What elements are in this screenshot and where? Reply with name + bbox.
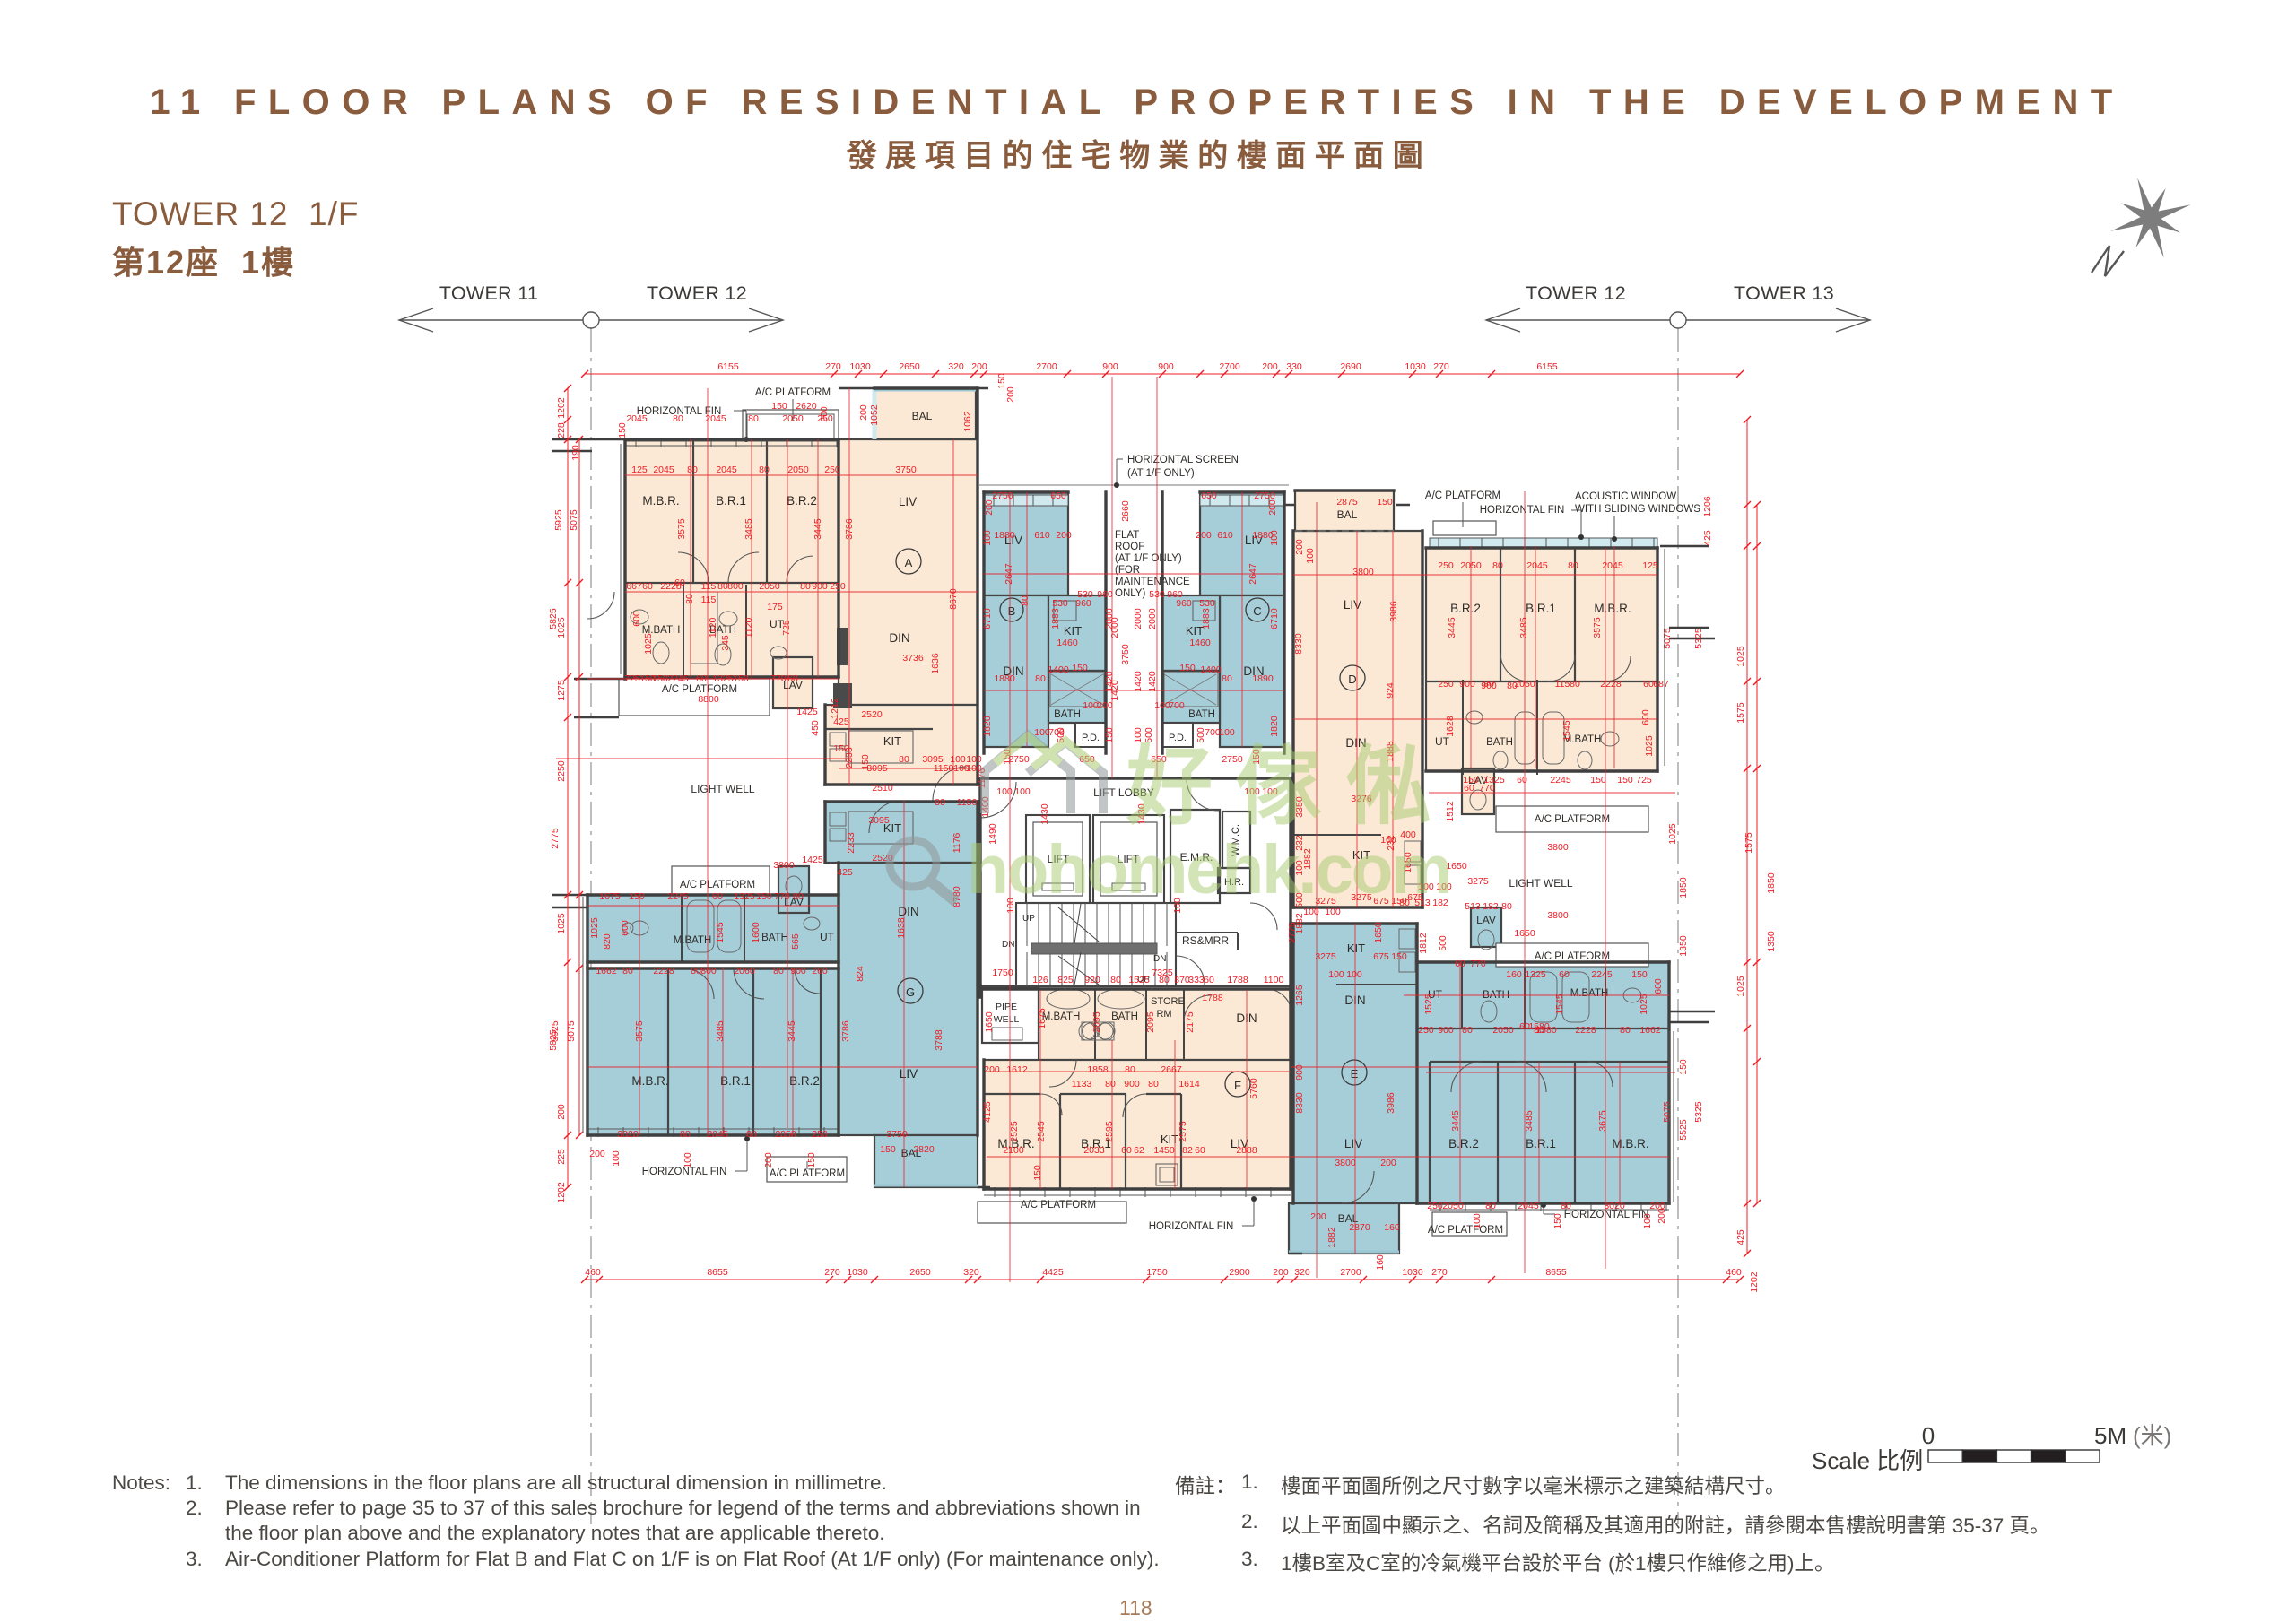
svg-text:1030: 1030 (1402, 1267, 1423, 1278)
svg-text:250: 250 (812, 1129, 828, 1140)
svg-text:60: 60 (1464, 783, 1474, 794)
svg-text:2095: 2095 (1145, 1011, 1156, 1033)
svg-text:333: 333 (1188, 975, 1205, 985)
svg-text:2775: 2775 (550, 828, 561, 849)
svg-text:270: 270 (1433, 361, 1449, 372)
svg-text:80: 80 (1485, 1201, 1496, 1211)
svg-text:1650: 1650 (984, 1011, 995, 1033)
svg-text:3786: 3786 (840, 1020, 851, 1042)
svg-text:2700: 2700 (1036, 361, 1057, 372)
svg-text:A/C PLATFORM: A/C PLATFORM (680, 880, 755, 890)
svg-text:(米): (米) (2133, 1422, 2171, 1449)
svg-text:KIT: KIT (1347, 942, 1365, 955)
svg-text:UP: UP (1022, 914, 1035, 924)
svg-text:150: 150 (1179, 663, 1196, 673)
svg-text:330: 330 (1286, 361, 1302, 372)
svg-text:2250: 2250 (556, 760, 567, 782)
svg-text:3095: 3095 (922, 754, 944, 765)
svg-text:80: 80 (793, 891, 804, 902)
svg-text:900: 900 (1438, 1025, 1454, 1036)
svg-text:1450: 1450 (1153, 1145, 1175, 1156)
svg-text:610: 610 (1217, 530, 1233, 541)
svg-text:725: 725 (624, 673, 640, 684)
svg-text:3485: 3485 (744, 518, 754, 540)
svg-text:60: 60 (696, 673, 707, 684)
svg-text:2750: 2750 (1254, 490, 1275, 501)
svg-text:2620: 2620 (796, 401, 817, 412)
svg-text:3786: 3786 (844, 518, 855, 540)
svg-text:650: 650 (1201, 490, 1217, 501)
svg-text:900: 900 (1102, 361, 1118, 372)
svg-text:150: 150 (1631, 969, 1648, 980)
svg-text:100: 100 (966, 754, 982, 765)
svg-text:(AT 1/F ONLY): (AT 1/F ONLY) (1127, 468, 1195, 479)
svg-text:2245: 2245 (667, 891, 689, 902)
svg-text:MAINTENANCE: MAINTENANCE (1115, 577, 1190, 587)
svg-text:A/C PLATFORM: A/C PLATFORM (1425, 490, 1500, 501)
svg-text:2045: 2045 (1602, 560, 1623, 571)
svg-text:ROOF: ROOF (1115, 542, 1144, 552)
svg-text:250: 250 (824, 464, 840, 475)
svg-text:M.BATH: M.BATH (1042, 1011, 1081, 1022)
svg-text:150: 150 (1377, 497, 1393, 508)
svg-text:M.BATH: M.BATH (674, 935, 712, 946)
svg-text:3788: 3788 (934, 1029, 944, 1051)
svg-text:1580: 1580 (1528, 1021, 1550, 1032)
svg-text:A/C PLATFORM: A/C PLATFORM (1021, 1200, 1096, 1211)
svg-text:KIT: KIT (1064, 624, 1082, 638)
svg-text:345: 345 (720, 635, 731, 651)
svg-text:667: 667 (626, 581, 642, 592)
svg-text:150: 150 (733, 673, 749, 684)
svg-text:80: 80 (1035, 673, 1046, 684)
svg-text:2667: 2667 (1161, 1064, 1182, 1075)
svg-text:LIV: LIV (899, 495, 917, 508)
svg-text:3575: 3575 (1592, 617, 1603, 638)
svg-text:2050: 2050 (1514, 679, 1535, 690)
svg-text:1675: 1675 (1037, 1008, 1048, 1029)
svg-text:1880: 1880 (994, 530, 1015, 541)
svg-text:2545: 2545 (1036, 1121, 1047, 1142)
svg-text:1275: 1275 (556, 680, 567, 701)
svg-text:2045: 2045 (1518, 1201, 1539, 1211)
svg-text:100: 100 (950, 754, 966, 765)
svg-text:60: 60 (1195, 1145, 1205, 1156)
svg-text:2100: 2100 (1003, 1145, 1024, 1156)
svg-text:250: 250 (830, 581, 846, 592)
svg-text:5075: 5075 (1662, 628, 1673, 649)
svg-text:D: D (1348, 673, 1356, 686)
svg-text:80: 80 (684, 594, 695, 604)
svg-text:80: 80 (622, 966, 633, 976)
svg-text:5825: 5825 (548, 608, 559, 629)
svg-text:LAV: LAV (1476, 914, 1496, 926)
svg-text:ACOUSTIC WINDOW: ACOUSTIC WINDOW (1575, 491, 1676, 502)
svg-text:770: 770 (774, 891, 790, 902)
svg-text:2510: 2510 (872, 783, 893, 794)
svg-text:3800: 3800 (1335, 1158, 1356, 1168)
svg-text:1350: 1350 (1678, 935, 1689, 957)
svg-text:E: E (1351, 1067, 1359, 1081)
svg-text:1202: 1202 (1749, 1271, 1760, 1293)
svg-text:260: 260 (812, 966, 828, 976)
svg-text:1120: 1120 (708, 618, 718, 638)
svg-text:425: 425 (837, 867, 853, 878)
svg-text:3020: 3020 (617, 1129, 639, 1140)
svg-text:2820: 2820 (913, 1144, 935, 1155)
svg-text:A/C PLATFORM: A/C PLATFORM (770, 1168, 845, 1179)
svg-text:825: 825 (1057, 975, 1074, 985)
svg-text:2050: 2050 (759, 581, 780, 592)
svg-text:8670: 8670 (948, 588, 959, 610)
svg-text:8655: 8655 (1545, 1267, 1567, 1278)
svg-text:2045: 2045 (626, 413, 648, 424)
svg-text:200: 200 (971, 361, 987, 372)
svg-text:2228: 2228 (1575, 1025, 1596, 1036)
svg-text:900: 900 (1124, 1079, 1140, 1089)
svg-text:460: 460 (1726, 1267, 1742, 1278)
svg-text:82: 82 (1182, 1145, 1193, 1156)
svg-text:824: 824 (855, 966, 865, 982)
svg-text:100: 100 (1642, 1213, 1653, 1229)
svg-text:2245: 2245 (1591, 969, 1613, 980)
svg-text:5075: 5075 (1662, 1101, 1673, 1123)
svg-text:600: 600 (1640, 709, 1651, 725)
svg-text:150: 150 (806, 1152, 817, 1168)
svg-text:M.B.R.: M.B.R. (631, 1074, 668, 1088)
svg-text:80: 80 (717, 581, 728, 592)
svg-text:1612: 1612 (1006, 1064, 1028, 1075)
svg-text:M.B.R.: M.B.R. (642, 494, 679, 508)
svg-text:160: 160 (1506, 969, 1522, 980)
svg-text:1545: 1545 (1554, 994, 1565, 1015)
svg-text:60: 60 (1517, 775, 1527, 785)
svg-text:270: 270 (825, 361, 841, 372)
svg-text:2060: 2060 (734, 966, 755, 976)
svg-text:1788: 1788 (1227, 975, 1248, 985)
svg-text:1400: 1400 (1048, 664, 1069, 675)
svg-text:250: 250 (1438, 679, 1454, 690)
svg-text:80: 80 (1159, 975, 1170, 985)
svg-text:900: 900 (1158, 361, 1174, 372)
svg-text:2000: 2000 (1109, 617, 1120, 638)
svg-text:1638: 1638 (896, 917, 907, 939)
svg-text:530: 530 (1052, 598, 1068, 609)
svg-text:270: 270 (824, 1267, 840, 1278)
svg-text:150: 150 (1072, 663, 1088, 673)
svg-text:DN: DN (1153, 954, 1166, 964)
svg-text:2750: 2750 (992, 490, 1013, 501)
svg-text:80: 80 (1125, 1064, 1135, 1075)
svg-text:62: 62 (1134, 1145, 1144, 1156)
svg-text:8800: 8800 (698, 694, 719, 705)
svg-text:3800: 3800 (1352, 567, 1374, 577)
svg-text:200: 200 (589, 1149, 605, 1159)
svg-text:60: 60 (1455, 959, 1465, 969)
svg-text:425: 425 (833, 716, 849, 727)
svg-text:200: 200 (984, 1064, 1000, 1075)
svg-text:2690: 2690 (1340, 361, 1361, 372)
svg-text:LIV: LIV (1344, 598, 1361, 612)
svg-text:RM: RM (1156, 1009, 1171, 1020)
svg-text:80: 80 (899, 754, 909, 765)
svg-text:3800: 3800 (1547, 910, 1569, 921)
svg-text:5325: 5325 (1693, 1101, 1704, 1123)
svg-text:1025: 1025 (1735, 976, 1746, 997)
svg-text:BAL: BAL (1337, 508, 1358, 521)
svg-text:200: 200 (1005, 386, 1016, 403)
svg-text:60: 60 (642, 581, 653, 592)
svg-text:125: 125 (631, 464, 648, 475)
svg-text:100: 100 (1269, 530, 1280, 546)
svg-text:B.R.2: B.R.2 (1448, 1137, 1479, 1150)
svg-text:6155: 6155 (717, 361, 739, 372)
svg-text:1662: 1662 (596, 966, 617, 976)
svg-text:1206: 1206 (1702, 496, 1713, 517)
svg-text:4425: 4425 (1042, 1267, 1064, 1278)
svg-text:A/C PLATFORM: A/C PLATFORM (1535, 814, 1610, 825)
svg-text:HORIZONTAL SCREEN: HORIZONTAL SCREEN (1127, 455, 1239, 465)
svg-text:150: 150 (617, 422, 628, 438)
svg-text:1025: 1025 (589, 917, 600, 939)
svg-text:2525: 2525 (1009, 1121, 1020, 1142)
svg-text:3275: 3275 (1467, 876, 1489, 887)
svg-text:1350: 1350 (1766, 931, 1777, 952)
svg-text:2045: 2045 (1526, 560, 1548, 571)
svg-text:2050: 2050 (775, 1129, 796, 1140)
svg-text:1750: 1750 (1146, 1267, 1168, 1278)
svg-text:5925: 5925 (553, 509, 564, 531)
svg-text:200: 200 (1097, 700, 1113, 711)
svg-text:200: 200 (1657, 1208, 1667, 1224)
svg-text:320: 320 (1294, 1267, 1310, 1278)
svg-text:2700: 2700 (1340, 1267, 1361, 1278)
svg-text:1460: 1460 (1189, 638, 1211, 648)
svg-text:3736: 3736 (902, 653, 924, 664)
svg-text:1890: 1890 (1252, 673, 1274, 684)
svg-text:770: 770 (770, 673, 787, 684)
svg-text:M.B.R.: M.B.R. (1594, 602, 1631, 615)
svg-text:1120: 1120 (744, 618, 754, 638)
svg-text:228: 228 (556, 422, 567, 438)
svg-text:1675: 1675 (599, 891, 621, 902)
svg-text:2045: 2045 (716, 464, 737, 475)
svg-text:150: 150 (1391, 951, 1407, 962)
svg-text:200: 200 (1262, 361, 1278, 372)
svg-text:BATH: BATH (1111, 1011, 1138, 1022)
svg-text:200: 200 (819, 406, 830, 422)
svg-text:770: 770 (1470, 959, 1486, 969)
svg-text:150: 150 (652, 673, 668, 684)
svg-text:115: 115 (701, 595, 717, 605)
svg-text:80: 80 (1501, 901, 1512, 912)
svg-text:1420: 1420 (1133, 671, 1144, 692)
svg-text:1030: 1030 (1405, 361, 1426, 372)
svg-text:BATH: BATH (761, 933, 788, 943)
svg-text:BATH: BATH (1486, 737, 1513, 748)
svg-text:3445: 3445 (1450, 1110, 1461, 1132)
svg-text:B.R.2: B.R.2 (787, 494, 817, 508)
svg-text:3575: 3575 (634, 1020, 645, 1042)
svg-text:610: 610 (1034, 530, 1050, 541)
svg-text:80: 80 (673, 413, 683, 424)
svg-text:80: 80 (691, 966, 701, 976)
svg-text:2245: 2245 (1550, 775, 1571, 785)
svg-text:725: 725 (781, 620, 792, 636)
svg-text:5325: 5325 (1693, 628, 1704, 649)
svg-text:565: 565 (790, 933, 801, 950)
svg-text:1525: 1525 (1128, 975, 1150, 985)
svg-text:2045: 2045 (653, 464, 674, 475)
svg-text:80: 80 (748, 413, 759, 424)
svg-text:WITH SLIDING WINDOWS: WITH SLIDING WINDOWS (1575, 504, 1700, 515)
svg-text:3445: 3445 (813, 518, 823, 540)
svg-text:150: 150 (771, 401, 787, 412)
svg-text:115: 115 (1555, 679, 1570, 690)
svg-text:725: 725 (1636, 775, 1652, 785)
svg-text:1545: 1545 (715, 922, 726, 943)
svg-text:820: 820 (602, 933, 613, 950)
svg-text:60: 60 (674, 577, 685, 588)
svg-text:DIN: DIN (889, 631, 909, 645)
svg-text:150: 150 (996, 373, 1007, 389)
svg-text:1025: 1025 (1639, 994, 1649, 1015)
svg-text:150: 150 (1032, 1165, 1043, 1181)
svg-text:3750: 3750 (1120, 644, 1131, 665)
svg-text:1545: 1545 (1561, 720, 1572, 742)
svg-text:100: 100 (982, 530, 993, 546)
svg-text:60: 60 (712, 891, 723, 902)
svg-text:3485: 3485 (1518, 617, 1529, 638)
svg-text:2595: 2595 (1104, 1121, 1115, 1142)
svg-text:250: 250 (1418, 1025, 1434, 1036)
svg-text:2228: 2228 (653, 966, 674, 976)
svg-text:160: 160 (1384, 1222, 1400, 1233)
svg-text:100: 100 (1328, 969, 1344, 980)
svg-text:1600: 1600 (751, 922, 761, 943)
svg-text:80: 80 (1570, 679, 1580, 690)
svg-text:2888: 2888 (1236, 1145, 1257, 1156)
svg-text:1880: 1880 (994, 673, 1015, 684)
svg-text:1636: 1636 (930, 653, 941, 674)
svg-text:2245: 2245 (667, 673, 689, 684)
svg-text:1858: 1858 (1087, 1064, 1109, 1075)
svg-text:1820: 1820 (982, 716, 993, 737)
svg-text:2700: 2700 (1219, 361, 1240, 372)
svg-text:80: 80 (1620, 1025, 1631, 1036)
svg-text:LIV: LIV (1344, 1137, 1362, 1150)
svg-text:8330: 8330 (1294, 1092, 1305, 1114)
svg-text:687: 687 (1653, 679, 1669, 690)
svg-text:513: 513 (1465, 901, 1481, 912)
svg-text:1812: 1812 (1418, 933, 1429, 954)
svg-text:3800: 3800 (773, 860, 795, 871)
svg-text:3675: 3675 (1597, 1110, 1608, 1132)
svg-text:BATH: BATH (1054, 709, 1081, 720)
svg-text:425: 425 (1702, 530, 1713, 546)
svg-text:80: 80 (935, 797, 945, 808)
svg-text:450: 450 (810, 720, 821, 736)
svg-text:1882: 1882 (1326, 1227, 1337, 1248)
svg-text:2875: 2875 (1336, 497, 1358, 508)
svg-text:DIN: DIN (898, 905, 918, 918)
svg-text:700: 700 (1169, 700, 1185, 711)
svg-text:3750: 3750 (886, 1129, 908, 1140)
svg-text:530: 530 (1149, 589, 1165, 600)
svg-text:270: 270 (1431, 1267, 1448, 1278)
svg-text:8330: 8330 (1293, 633, 1304, 655)
svg-text:250: 250 (1438, 560, 1454, 571)
svg-text:700: 700 (1048, 727, 1065, 738)
svg-text:1614: 1614 (1178, 1079, 1200, 1089)
svg-text:1400: 1400 (1200, 664, 1222, 675)
svg-text:1850: 1850 (1678, 877, 1689, 898)
svg-text:150: 150 (756, 891, 772, 902)
svg-text:60: 60 (787, 673, 798, 684)
svg-text:1628: 1628 (1445, 716, 1456, 737)
svg-text:TOWER 12: TOWER 12 (647, 282, 747, 304)
svg-text:1025: 1025 (1667, 823, 1678, 845)
svg-text:6155: 6155 (1536, 361, 1558, 372)
svg-text:2228: 2228 (1600, 679, 1622, 690)
svg-text:200: 200 (1273, 1267, 1289, 1278)
svg-text:BAL: BAL (912, 410, 933, 422)
svg-text:P.D.: P.D. (1082, 733, 1100, 743)
svg-text:182: 182 (1483, 901, 1499, 912)
svg-text:4125: 4125 (982, 1101, 993, 1123)
svg-text:100: 100 (1305, 548, 1316, 564)
svg-text:1176: 1176 (952, 833, 962, 854)
svg-text:RS&MRR: RS&MRR (1182, 934, 1229, 947)
svg-text:HORIZONTAL FIN: HORIZONTAL FIN (1480, 505, 1565, 516)
svg-text:1325: 1325 (734, 891, 755, 902)
svg-text:1265: 1265 (1294, 985, 1305, 1006)
svg-text:WELL: WELL (994, 1014, 1020, 1025)
svg-text:2000: 2000 (1147, 608, 1158, 629)
svg-text:2647: 2647 (1248, 563, 1258, 585)
svg-text:2650: 2650 (899, 361, 920, 372)
svg-text:2050: 2050 (1492, 1025, 1514, 1036)
svg-text:B.R.1: B.R.1 (716, 494, 746, 508)
svg-text:125: 125 (1642, 560, 1658, 571)
svg-text:2095: 2095 (1091, 1011, 1102, 1033)
svg-text:2520: 2520 (861, 709, 883, 720)
svg-text:2033: 2033 (1083, 1145, 1105, 1156)
svg-text:hohomehk.com: hohomehk.com (967, 831, 1450, 908)
svg-text:HORIZONTAL FIN: HORIZONTAL FIN (1149, 1221, 1234, 1232)
svg-text:100: 100 (996, 786, 1013, 797)
svg-text:150: 150 (629, 891, 645, 902)
svg-text:6710: 6710 (982, 608, 993, 629)
svg-text:250: 250 (1427, 1201, 1443, 1211)
svg-text:1820: 1820 (1269, 716, 1280, 737)
svg-text:2050: 2050 (787, 464, 809, 475)
svg-text:900: 900 (1481, 681, 1497, 691)
svg-text:200: 200 (1380, 1158, 1396, 1168)
svg-text:800: 800 (727, 581, 744, 592)
svg-text:600: 600 (631, 611, 642, 627)
svg-text:115: 115 (701, 581, 717, 592)
svg-text:80: 80 (1462, 1025, 1473, 1036)
svg-text:1650: 1650 (1514, 928, 1535, 939)
svg-text:900: 900 (1294, 1064, 1305, 1081)
svg-text:1062: 1062 (962, 411, 973, 432)
svg-text:1100: 1100 (1264, 975, 1284, 985)
svg-text:80: 80 (759, 464, 770, 475)
svg-text:STORE: STORE (1151, 996, 1185, 1007)
svg-text:5760: 5760 (1248, 1078, 1259, 1099)
svg-text:1662: 1662 (1639, 1025, 1661, 1036)
